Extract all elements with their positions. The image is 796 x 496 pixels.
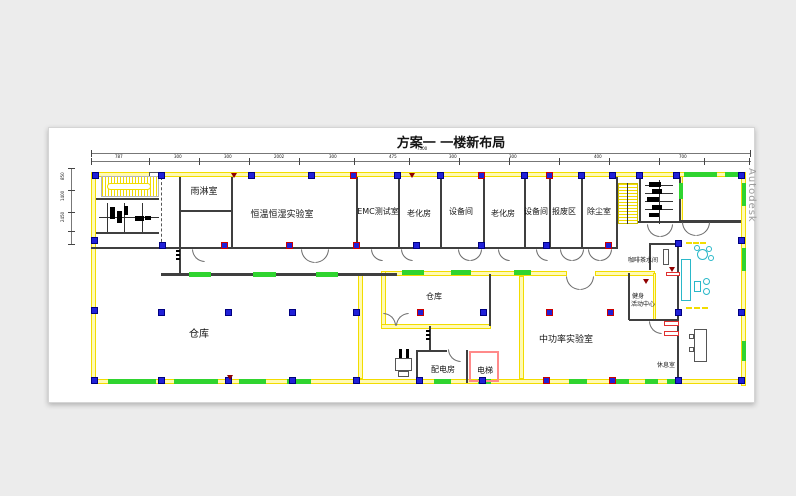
column-marker <box>609 172 616 179</box>
column-marker <box>605 242 612 249</box>
column-marker <box>353 377 360 384</box>
door-arc <box>696 222 710 236</box>
transformer-base <box>398 371 409 377</box>
wall-segment <box>231 177 233 248</box>
door-arc <box>498 249 510 261</box>
marker-triangle <box>231 173 237 178</box>
door-arc <box>371 249 383 261</box>
desk <box>694 329 707 362</box>
chair <box>689 334 694 339</box>
equipment-block <box>649 213 659 217</box>
dimension-text: 850 <box>61 172 65 180</box>
column-marker <box>521 172 528 179</box>
column-marker <box>738 377 745 384</box>
dimension-tick <box>750 150 751 157</box>
wall-break-symbol <box>176 250 180 262</box>
column-marker <box>478 242 485 249</box>
column-marker <box>675 377 682 384</box>
column-marker <box>350 172 357 179</box>
sofa-counter <box>681 259 691 301</box>
column-marker <box>546 172 553 179</box>
dimension-tick <box>68 212 75 213</box>
dimension-tick <box>68 168 75 169</box>
column-marker <box>289 309 296 316</box>
counter-sink <box>663 249 669 265</box>
small-table <box>694 281 701 292</box>
column-marker <box>92 172 99 179</box>
column-marker <box>437 172 444 179</box>
dimension-tick <box>299 158 300 165</box>
column-marker <box>225 309 232 316</box>
column-marker <box>158 309 165 316</box>
dashed-line <box>686 307 708 309</box>
column-marker <box>543 242 550 249</box>
wall-break-symbol <box>426 330 430 342</box>
window-segment <box>108 379 156 384</box>
column-marker <box>221 242 228 249</box>
room-label-rain-room: 雨淋室 <box>190 184 217 197</box>
dimension-line <box>91 153 751 154</box>
wall-segment <box>179 210 231 212</box>
door-arc <box>580 276 594 290</box>
dimension-text: 300 <box>174 155 182 159</box>
dimension-tick <box>704 158 705 165</box>
column-marker <box>286 242 293 249</box>
red-fixture <box>664 321 679 326</box>
column-marker <box>479 377 486 384</box>
dimension-tick <box>91 158 92 165</box>
column-marker <box>738 172 745 179</box>
transformer-body <box>395 358 412 371</box>
wall-segment <box>595 271 655 276</box>
column-marker <box>675 309 682 316</box>
wall-segment <box>440 177 442 248</box>
window-segment <box>514 270 531 275</box>
door-arc <box>396 313 409 326</box>
plan-title: 方案一 一楼新布局 <box>397 132 506 151</box>
chair <box>706 246 712 252</box>
column-marker <box>353 309 360 316</box>
staircase-rail <box>627 183 628 224</box>
canvas-background: 方案一 一楼新布局 雨淋室 恒温恒湿实验室 EMC测试室 老化房 设备间 老化房… <box>0 0 796 496</box>
wall-segment <box>489 274 491 326</box>
equipment-block <box>647 197 659 202</box>
wall-segment <box>519 276 524 379</box>
dimension-text: 300 <box>449 155 457 159</box>
dimension-tick <box>459 158 460 165</box>
dimension-tick <box>354 158 355 165</box>
column-marker <box>546 309 553 316</box>
room-label-emc-lab: EMC测试室 <box>357 206 399 217</box>
column-marker <box>158 172 165 179</box>
window-segment <box>684 172 717 177</box>
room-label-scrap-area: 报废区 <box>552 206 576 217</box>
drawing-sheet: 方案一 一楼新布局 雨淋室 恒温恒湿实验室 EMC测试室 老化房 设备间 老化房… <box>48 127 755 403</box>
column-marker <box>543 377 550 384</box>
dimension-line <box>91 161 751 162</box>
equipment-block <box>145 216 151 220</box>
column-marker <box>417 309 424 316</box>
equipment-block <box>652 205 662 210</box>
floor-plan-canvas: 方案一 一楼新布局 雨淋室 恒温恒湿实验室 EMC测试室 老化房 设备间 老化房… <box>49 128 754 402</box>
door-arc <box>301 249 315 263</box>
door-arc <box>536 249 548 261</box>
door-arc <box>315 249 329 263</box>
red-fixture <box>664 331 679 336</box>
window-segment <box>174 379 218 384</box>
room-label-elevator: 电梯 <box>477 365 493 376</box>
column-marker <box>675 240 682 247</box>
transformer-prong <box>406 349 409 358</box>
room-label-fitness-line2: 活动中心 <box>631 299 655 308</box>
window-segment <box>253 272 276 277</box>
column-marker <box>478 172 485 179</box>
wall-segment <box>358 274 363 379</box>
room-label-rest-room: 休息室 <box>657 360 675 369</box>
dimension-text: 1400 <box>61 191 65 201</box>
equipment-block <box>117 211 122 223</box>
chair <box>703 278 710 285</box>
door-arc <box>647 224 660 237</box>
door-arc <box>566 276 580 290</box>
wall-segment <box>581 177 583 248</box>
wall-segment <box>653 273 656 320</box>
column-marker <box>738 309 745 316</box>
transformer-prong <box>399 349 402 358</box>
dimension-tick <box>149 158 150 165</box>
door-arc <box>682 222 696 236</box>
door-arc <box>401 249 413 261</box>
column-marker <box>159 242 166 249</box>
wall-segment <box>96 232 159 234</box>
room-label-equip-room-1: 设备间 <box>449 206 473 217</box>
dimension-text: 2450 <box>61 212 65 222</box>
dashed-boundary <box>161 177 162 247</box>
marker-triangle <box>409 173 415 178</box>
column-marker <box>413 242 420 249</box>
marker-triangle <box>669 267 675 272</box>
column-marker <box>480 309 487 316</box>
dimension-text: 475 <box>389 155 397 159</box>
equipment-block <box>135 216 144 221</box>
autodesk-watermark: Autodesk <box>746 168 757 278</box>
window-segment <box>402 270 424 275</box>
dimension-tick <box>68 231 75 232</box>
column-marker <box>289 377 296 384</box>
room-label-midpower-lab: 中功率实验室 <box>539 332 593 345</box>
room-label-power-room: 配电房 <box>431 364 455 375</box>
wall-segment <box>91 172 96 384</box>
wall-segment <box>91 172 746 177</box>
dimension-tick <box>199 158 200 165</box>
dimension-tick <box>68 244 75 245</box>
chair <box>703 288 710 295</box>
door-arc <box>588 249 600 261</box>
column-marker <box>158 377 165 384</box>
door-arc <box>448 349 461 362</box>
wall-segment <box>466 350 468 383</box>
staircase-hatch <box>618 183 638 224</box>
column-marker <box>394 172 401 179</box>
dimension-line <box>71 168 72 245</box>
chair <box>694 245 700 251</box>
dimension-tick <box>659 158 660 165</box>
dimension-tick <box>559 158 560 165</box>
column-marker <box>91 307 98 314</box>
equipment-block <box>652 189 662 194</box>
column-marker <box>308 172 315 179</box>
chair <box>708 255 714 261</box>
dashed-line <box>686 242 706 244</box>
wall-segment <box>628 273 630 320</box>
dimension-text: 400 <box>594 155 602 159</box>
window-segment <box>189 272 211 277</box>
dimension-tick <box>249 158 250 165</box>
window-segment <box>645 379 658 384</box>
wall-segment <box>639 177 641 223</box>
door-arc <box>649 321 662 334</box>
marker-triangle <box>227 375 233 380</box>
dimension-tick <box>409 158 410 165</box>
column-marker <box>353 242 360 249</box>
column-marker <box>609 377 616 384</box>
wall-segment <box>416 350 447 352</box>
door-arc <box>458 249 470 261</box>
dimension-tick <box>609 158 610 165</box>
window-segment <box>316 272 338 277</box>
window-segment <box>434 379 451 384</box>
column-marker <box>738 237 745 244</box>
window-segment <box>451 270 471 275</box>
dimension-text: 700 <box>679 155 687 159</box>
dimension-tick <box>91 150 92 157</box>
room-label-coffee-room: 咖啡茶水间 <box>628 255 658 264</box>
door-arc <box>470 249 482 261</box>
dimension-tick <box>509 158 510 165</box>
equipment-block <box>110 207 115 219</box>
equipment-block <box>649 182 661 187</box>
column-marker <box>607 309 614 316</box>
column-marker <box>416 377 423 384</box>
room-label-climate-lab: 恒温恒湿实验室 <box>250 207 313 220</box>
door-arc <box>600 249 612 261</box>
dimension-tick <box>68 190 75 191</box>
equipment-block <box>124 206 128 215</box>
room-label-warehouse-small: 仓库 <box>426 291 442 302</box>
column-marker <box>578 172 585 179</box>
dimension-text: 300 <box>329 155 337 159</box>
wall-segment <box>179 177 181 248</box>
window-segment <box>239 379 266 384</box>
room-label-dust-room: 除尘室 <box>587 206 611 217</box>
room-label-warehouse-large: 仓库 <box>189 325 209 340</box>
window-segment <box>742 341 746 361</box>
door-arc <box>192 249 205 262</box>
red-fixture <box>666 272 680 276</box>
door-arc <box>572 249 584 261</box>
dimension-text: 300 <box>224 155 232 159</box>
room-label-aging-room-2: 老化房 <box>491 208 515 219</box>
marker-triangle <box>643 279 649 284</box>
door-arc <box>560 249 572 261</box>
column-marker <box>91 237 98 244</box>
dimension-tick <box>749 158 750 165</box>
column-marker <box>636 172 643 179</box>
room-label-aging-room-1: 老化房 <box>407 208 431 219</box>
room-label-equip-room-2: 设备间 <box>524 206 548 217</box>
column-marker <box>248 172 255 179</box>
window-segment <box>569 379 587 384</box>
column-marker <box>91 377 98 384</box>
chair <box>689 347 694 352</box>
wall-segment <box>549 177 551 248</box>
door-arc <box>383 313 396 326</box>
staircase-rail <box>107 183 151 190</box>
wall-segment <box>483 177 485 248</box>
wall-segment <box>96 198 159 200</box>
dimension-text: 787 <box>115 155 123 159</box>
dimension-text: 2002 <box>274 155 284 159</box>
door-arc <box>660 224 673 237</box>
dimension-text: 300 <box>509 155 517 159</box>
window-segment <box>679 183 683 199</box>
column-marker <box>673 172 680 179</box>
